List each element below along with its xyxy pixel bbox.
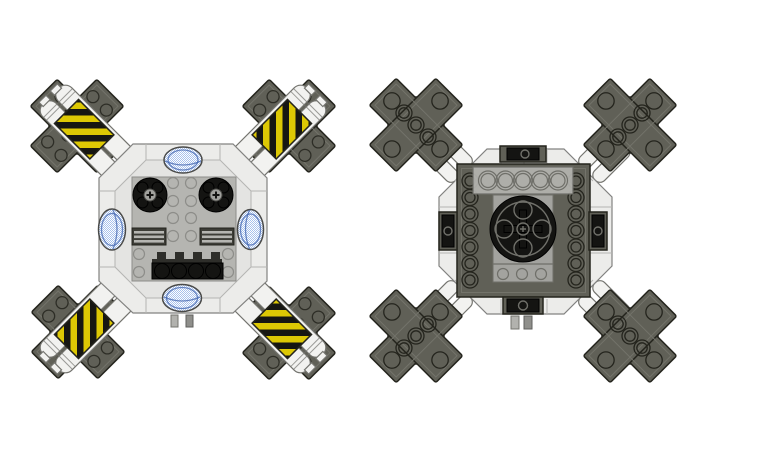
grille-vent-right (200, 228, 234, 245)
pin-hole-brick-top (500, 146, 546, 162)
grille-vent-left (132, 228, 166, 245)
rotor-disc-left (133, 178, 167, 212)
bottom-view-model (350, 59, 697, 403)
pin-hole-brick-bottom (503, 297, 543, 314)
pin-hole-brick-right (589, 212, 607, 250)
viewport-dome-top (164, 147, 202, 173)
pin-hole-brick-left (439, 212, 457, 250)
viewport-dome-left (99, 209, 126, 250)
viewport-dome-bottom (163, 285, 202, 312)
render-canvas (0, 0, 773, 461)
translucent-tube-plate (473, 167, 573, 194)
viewport-dome-right (238, 210, 264, 250)
rotor-disc-right (199, 178, 233, 212)
bottom-pins (171, 315, 193, 327)
screenshot-canvas (0, 0, 773, 461)
bottom-pins-underside (511, 316, 532, 329)
top-view-model (11, 60, 356, 400)
turntable-disc (490, 196, 556, 262)
